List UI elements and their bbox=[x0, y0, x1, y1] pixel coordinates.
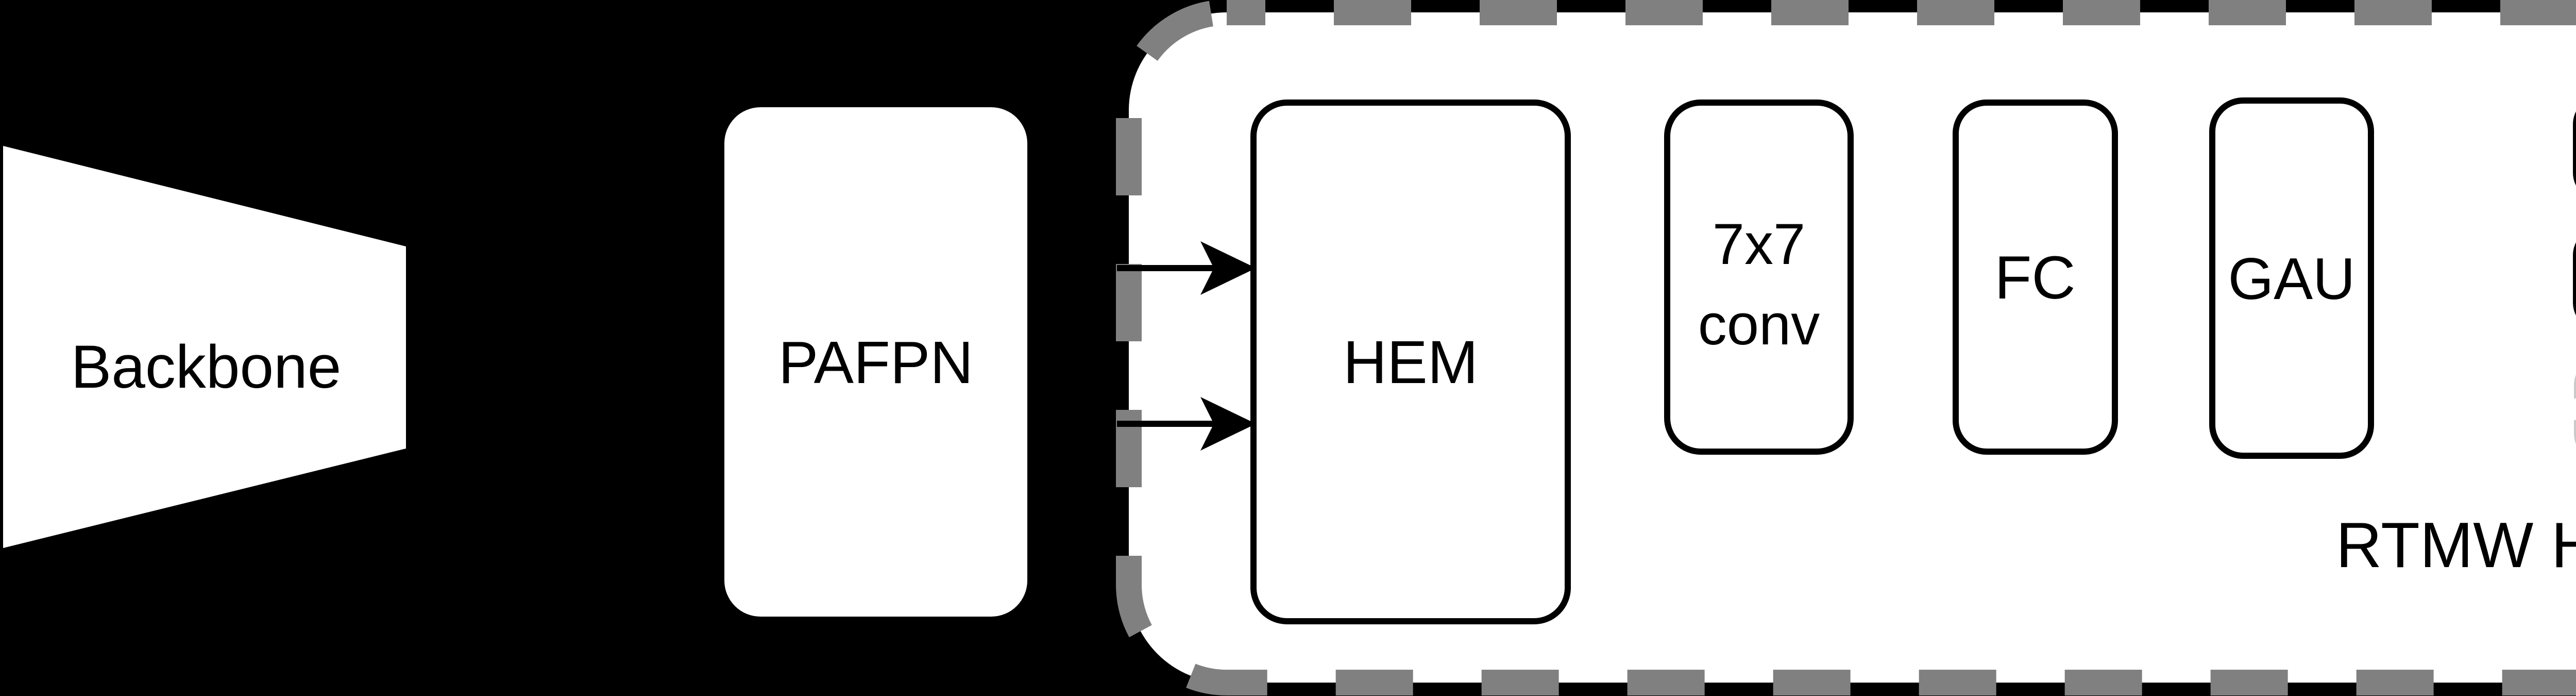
rtmw-head-label: RTMW Head bbox=[2336, 510, 2576, 581]
conv7x7-label-line1: 7x7 bbox=[1713, 212, 1806, 276]
conv7x7-label-line2: conv bbox=[1698, 292, 1820, 357]
hem-label: HEM bbox=[1343, 328, 1478, 396]
gau-label: GAU bbox=[2228, 246, 2355, 312]
pafpn-label: PAFPN bbox=[778, 329, 973, 396]
conv7x7-box bbox=[1667, 103, 1851, 452]
fc-label: FC bbox=[1994, 244, 2075, 312]
architecture-diagram: Backbone PAFPN HEM 7x7 conv FC GAU SimCC… bbox=[0, 0, 2576, 696]
backbone-label: Backbone bbox=[71, 333, 342, 401]
diagram-canvas: Backbone PAFPN HEM 7x7 conv FC GAU SimCC… bbox=[0, 0, 2576, 696]
